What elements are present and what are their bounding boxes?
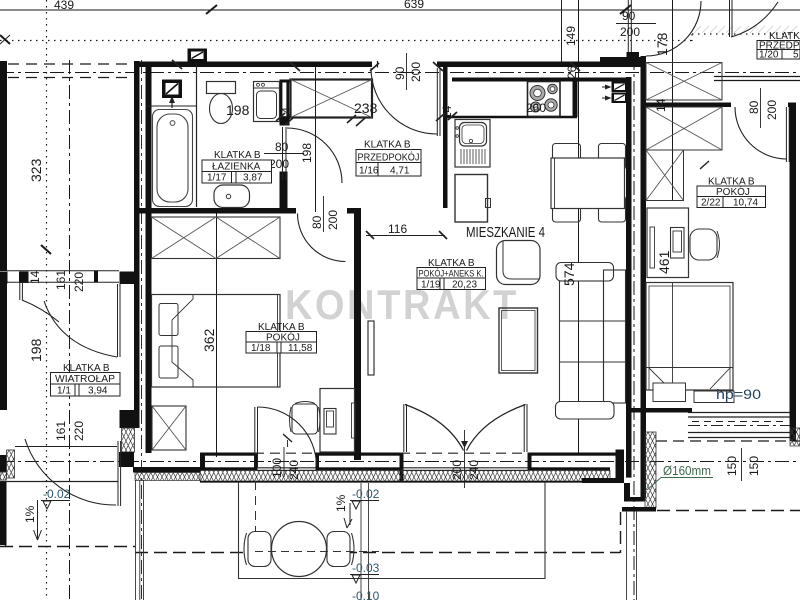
- svg-text:80: 80: [310, 215, 324, 229]
- svg-text:461: 461: [656, 250, 672, 274]
- svg-text:10,74: 10,74: [733, 198, 758, 209]
- svg-text:POKÓJ+ANEKS K.: POKÓJ+ANEKS K.: [419, 269, 484, 280]
- svg-text:-0.02: -0.02: [43, 487, 71, 501]
- svg-text:3,87: 3,87: [243, 173, 263, 184]
- svg-text:150: 150: [725, 456, 739, 476]
- svg-text:116: 116: [388, 222, 407, 236]
- svg-text:198: 198: [300, 143, 314, 163]
- svg-text:238: 238: [354, 100, 378, 116]
- svg-text:200: 200: [450, 460, 464, 480]
- svg-text:80: 80: [747, 100, 761, 114]
- svg-text:200: 200: [620, 25, 640, 39]
- svg-text:POKÓJ: POKÓJ: [716, 185, 750, 198]
- svg-text:362: 362: [201, 328, 217, 352]
- svg-text:260: 260: [526, 101, 546, 115]
- svg-text:220: 220: [72, 421, 86, 441]
- svg-text:161: 161: [54, 270, 68, 290]
- svg-text:80: 80: [275, 140, 289, 154]
- svg-text:14: 14: [28, 270, 42, 284]
- svg-text:ŁAZIENKA: ŁAZIENKA: [212, 162, 261, 173]
- svg-text:1/19: 1/19: [421, 280, 441, 291]
- svg-text:-0.10: -0.10: [352, 589, 380, 600]
- svg-text:90: 90: [622, 9, 636, 23]
- svg-text:3,94: 3,94: [88, 386, 108, 397]
- svg-text:220: 220: [72, 272, 86, 292]
- svg-text:161: 161: [54, 421, 68, 441]
- svg-text:1/20: 1/20: [759, 50, 779, 61]
- svg-text:1/17: 1/17: [207, 173, 227, 184]
- svg-text:240: 240: [287, 460, 301, 480]
- svg-text:200: 200: [326, 210, 340, 230]
- svg-text:Ø160mm: Ø160mm: [663, 463, 711, 478]
- svg-text:20,23: 20,23: [452, 280, 477, 291]
- svg-text:2/22: 2/22: [701, 198, 721, 209]
- svg-text:200: 200: [765, 100, 779, 120]
- svg-text:4,71: 4,71: [390, 166, 410, 177]
- svg-text:KLATKA B: KLATKA B: [214, 150, 261, 161]
- svg-text:MIESZKANIE 4: MIESZKANIE 4: [466, 225, 545, 241]
- svg-text:200: 200: [409, 62, 423, 82]
- svg-text:1/16: 1/16: [359, 166, 379, 177]
- svg-text:200: 200: [269, 157, 289, 171]
- svg-text:240: 240: [467, 460, 481, 480]
- svg-text:323: 323: [28, 158, 44, 182]
- svg-text:POKÓJ: POKÓJ: [266, 331, 300, 344]
- svg-text:14: 14: [281, 107, 293, 120]
- svg-text:WIATROŁAP: WIATROŁAP: [55, 374, 115, 385]
- svg-text:1/1: 1/1: [57, 386, 71, 397]
- svg-text:574: 574: [561, 262, 577, 286]
- svg-text:-0.02: -0.02: [352, 487, 380, 501]
- svg-text:1%: 1%: [23, 505, 37, 523]
- svg-text:639: 639: [404, 0, 424, 11]
- svg-text:14: 14: [654, 98, 668, 112]
- svg-text:198: 198: [226, 102, 250, 118]
- svg-text:1%: 1%: [334, 494, 348, 512]
- svg-text:PRZEDPOKÓJ: PRZEDPOKÓJ: [358, 151, 420, 164]
- svg-text:90: 90: [393, 66, 407, 80]
- svg-text:1/18: 1/18: [251, 343, 271, 354]
- svg-text:KLATKA B: KLATKA B: [364, 140, 411, 151]
- svg-text:149: 149: [564, 26, 578, 46]
- svg-text:198: 198: [28, 338, 44, 362]
- svg-text:150: 150: [747, 456, 761, 476]
- svg-text:hp=90: hp=90: [716, 387, 761, 402]
- svg-text:11,58: 11,58: [288, 343, 313, 354]
- svg-text:439: 439: [54, 0, 74, 12]
- svg-text:178: 178: [654, 32, 670, 56]
- svg-text:100: 100: [270, 458, 284, 478]
- svg-text:5: 5: [793, 50, 799, 61]
- svg-text:-0.03: -0.03: [352, 561, 380, 575]
